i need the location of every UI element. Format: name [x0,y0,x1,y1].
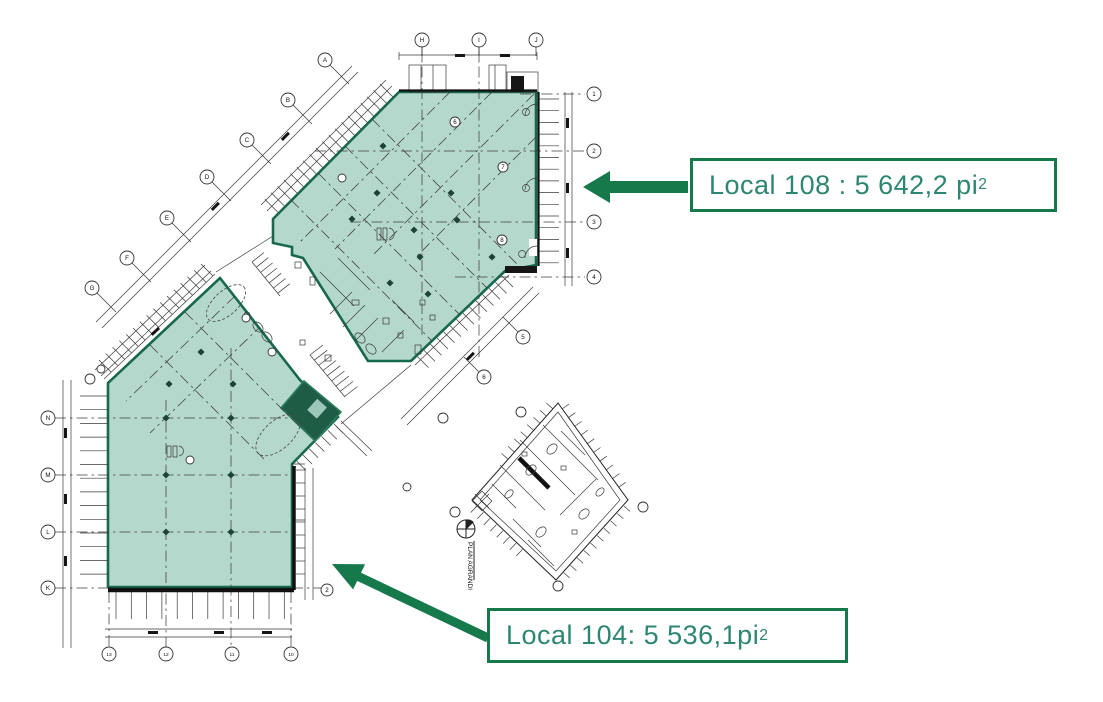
svg-text:10: 10 [288,652,294,658]
svg-text:2: 2 [325,587,329,594]
svg-text:M: M [45,472,50,479]
label-local-104: Local 104: 5 536,1pi2 [487,608,848,663]
north-symbol [457,520,475,538]
label-local-108-text: Local 108 : 5 642,2 pi [709,170,978,201]
svg-text:4: 4 [592,274,596,281]
label-local-108: Local 108 : 5 642,2 pi2 [690,158,1057,212]
svg-text:3: 3 [592,219,596,226]
svg-text:6: 6 [453,119,457,126]
svg-text:11: 11 [230,652,235,658]
svg-text:2: 2 [592,148,596,155]
detail-plan: PLAN AGRANDI [457,403,628,590]
svg-text:N: N [46,415,50,422]
arrow-local-108 [583,171,688,203]
svg-text:J: J [534,37,537,44]
svg-text:G: G [90,285,95,292]
svg-text:B: B [286,97,290,104]
svg-text:6: 6 [482,374,486,381]
plan-agrandi-label: PLAN AGRANDI [466,542,473,590]
wall-fill [505,266,537,273]
svg-text:13: 13 [106,652,112,658]
svg-text:H: H [420,37,424,44]
svg-text:D: D [205,174,210,181]
svg-text:12: 12 [163,652,169,658]
label-local-104-text: Local 104: 5 536,1pi [506,620,759,651]
floor-plan-page: PLAN AGRANDI ABCDEFGHIJ1234NMLK131211105… [0,0,1103,702]
floor-plan-svg: PLAN AGRANDI ABCDEFGHIJ1234NMLK131211105… [0,0,1103,702]
door-recess [529,239,537,256]
svg-text:8: 8 [500,237,504,244]
svg-text:5: 5 [521,334,525,341]
svg-text:L: L [46,529,50,536]
svg-text:E: E [165,215,169,222]
local-108-area [273,92,536,361]
svg-text:1: 1 [592,91,596,98]
svg-text:I: I [478,37,480,44]
svg-text:C: C [245,137,250,144]
svg-text:F: F [125,255,129,262]
svg-text:7: 7 [501,164,505,171]
